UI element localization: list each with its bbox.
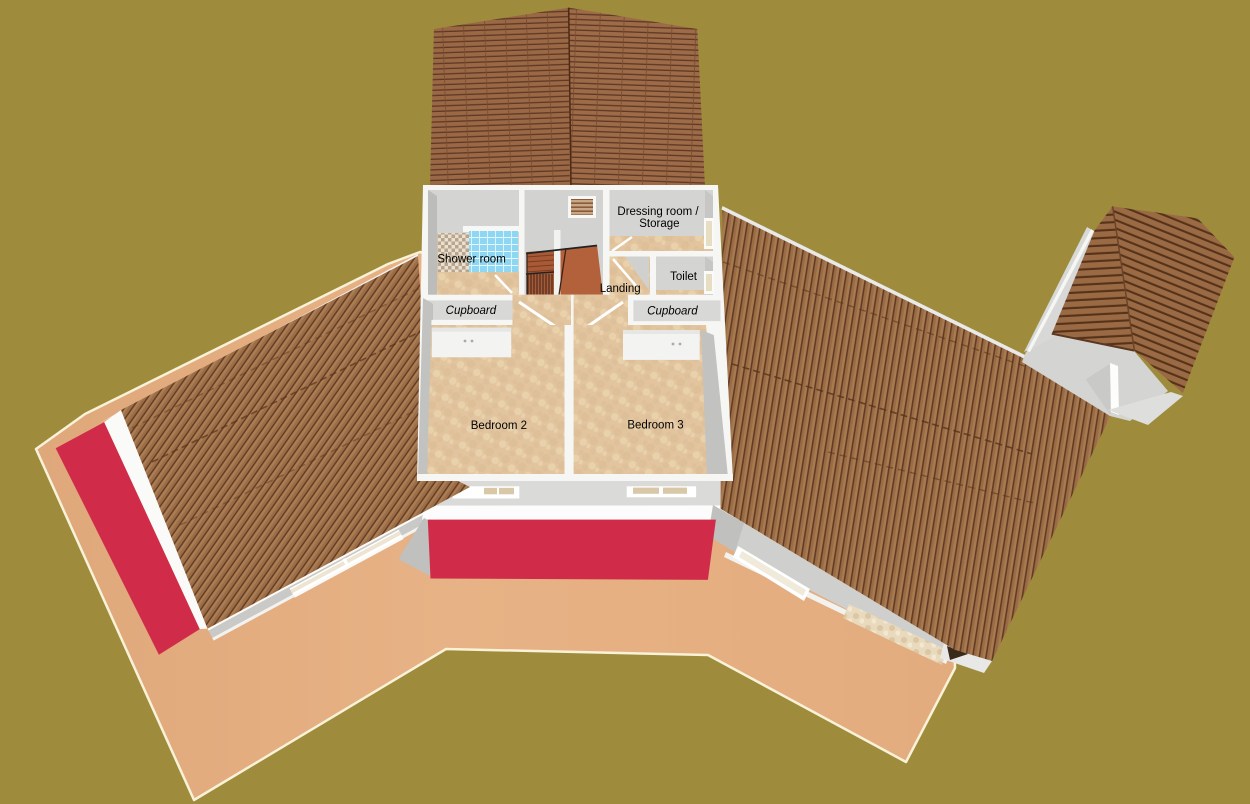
svg-text:Bedroom 3: Bedroom 3 — [627, 419, 683, 431]
svg-text:Landing: Landing — [600, 283, 641, 295]
svg-text:Storage: Storage — [639, 218, 679, 230]
svg-text:Toilet: Toilet — [670, 271, 698, 283]
svg-text:Shower room: Shower room — [437, 254, 505, 266]
svg-text:Cupboard: Cupboard — [647, 306, 698, 318]
svg-text:Bedroom 2: Bedroom 2 — [471, 420, 527, 432]
svg-text:Dressing room /: Dressing room / — [617, 206, 699, 218]
svg-text:Cupboard: Cupboard — [446, 305, 497, 317]
